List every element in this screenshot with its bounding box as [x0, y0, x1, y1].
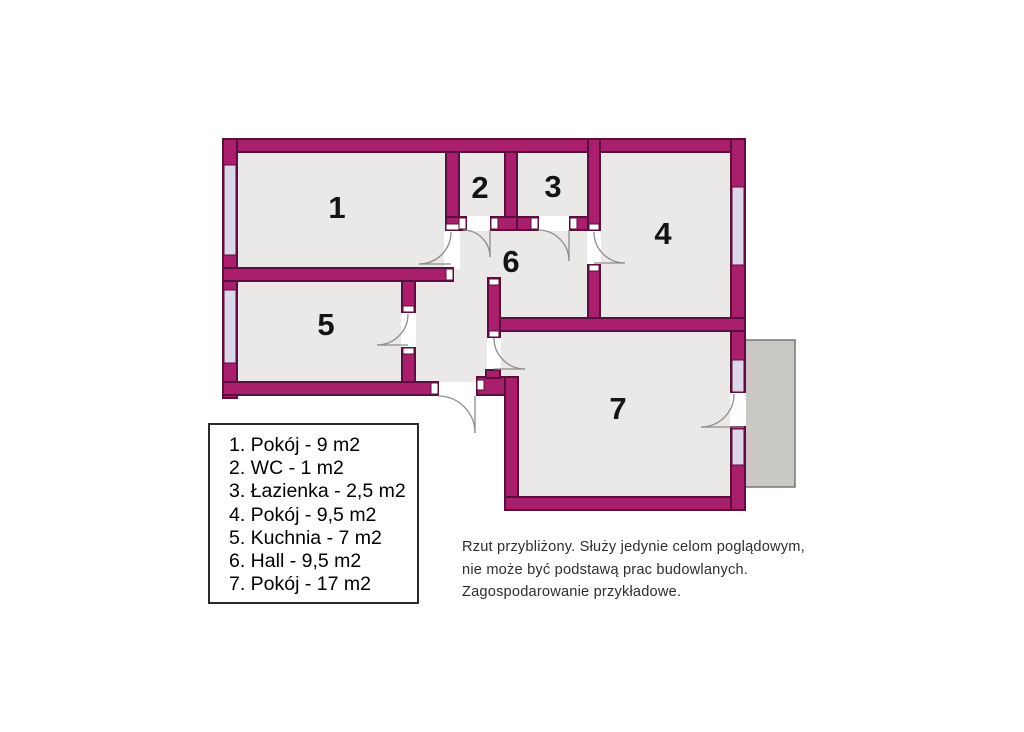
disclaimer-line-2: nie może być podstawą prac budowlanych.	[462, 559, 805, 582]
door-opening-bathroom	[538, 216, 570, 231]
room-label-5: 5	[317, 307, 334, 342]
wall-room7-left	[505, 377, 518, 510]
wall-outer-top	[223, 139, 745, 152]
door-jamb	[589, 224, 599, 230]
door-jamb	[403, 306, 414, 312]
window-kitchen	[224, 290, 236, 363]
door-jamb	[489, 331, 499, 337]
door-jamb	[403, 348, 414, 354]
window-room1	[224, 165, 236, 255]
disclaimer-line-1: Rzut przybliżony. Służy jedynie celom po…	[462, 536, 805, 559]
wall-room7-bottom	[505, 497, 745, 510]
balcony-door-opening	[730, 392, 746, 427]
room-label-6: 6	[502, 244, 519, 279]
window-room7-lower	[732, 429, 744, 465]
legend-item-7: 7. Pokój - 17 m2	[229, 573, 417, 596]
wall-hall-divider	[488, 278, 500, 337]
legend-item-1: 1. Pokój - 9 m2	[229, 434, 417, 457]
door-jamb	[489, 279, 499, 285]
wall-room7-top	[500, 318, 745, 331]
legend-item-4: 4. Pokój - 9,5 m2	[229, 504, 417, 527]
door-opening-wc	[466, 216, 491, 231]
wall-room4-left-upper	[588, 139, 600, 230]
wall-room1-bottom	[223, 268, 453, 281]
door-jamb	[589, 265, 599, 271]
legend: 1. Pokój - 9 m2 2. WC - 1 m2 3. Łazienka…	[208, 423, 419, 604]
wall-outer-bottom-left	[223, 382, 438, 395]
disclaimer: Rzut przybliżony. Służy jedynie celom po…	[462, 536, 805, 604]
entrance-opening	[438, 382, 477, 396]
door-jamb	[459, 218, 466, 229]
room-label-1: 1	[328, 190, 345, 225]
disclaimer-line-3: Zagospodarowanie przykładowe.	[462, 581, 805, 604]
door-jamb	[531, 218, 538, 229]
room-label-2: 2	[471, 170, 488, 205]
room-label-4: 4	[654, 216, 672, 251]
room-label-3: 3	[544, 169, 561, 204]
wall-entrance-ministub	[486, 370, 500, 378]
floorplan-page: 1 2 3 4 5 6 7 1. Pokój - 9 m2 2. WC - 1 …	[0, 0, 1024, 732]
door-jamb	[446, 224, 459, 230]
floor-plan: 1 2 3 4 5 6 7	[0, 0, 1024, 732]
legend-item-3: 3. Łazienka - 2,5 m2	[229, 480, 417, 503]
legend-item-2: 2. WC - 1 m2	[229, 457, 417, 480]
door-jamb	[431, 383, 438, 394]
door-jamb	[477, 380, 484, 390]
door-jamb	[446, 269, 453, 280]
room-label-7: 7	[609, 391, 626, 426]
window-room4	[732, 187, 744, 265]
window-room7-upper	[732, 360, 744, 392]
balcony	[743, 340, 795, 487]
legend-item-6: 6. Hall - 9,5 m2	[229, 550, 417, 573]
door-jamb	[570, 218, 577, 229]
door-swing-arc-entrance	[438, 396, 475, 433]
door-jamb	[491, 218, 498, 229]
legend-item-5: 5. Kuchnia - 7 m2	[229, 527, 417, 550]
